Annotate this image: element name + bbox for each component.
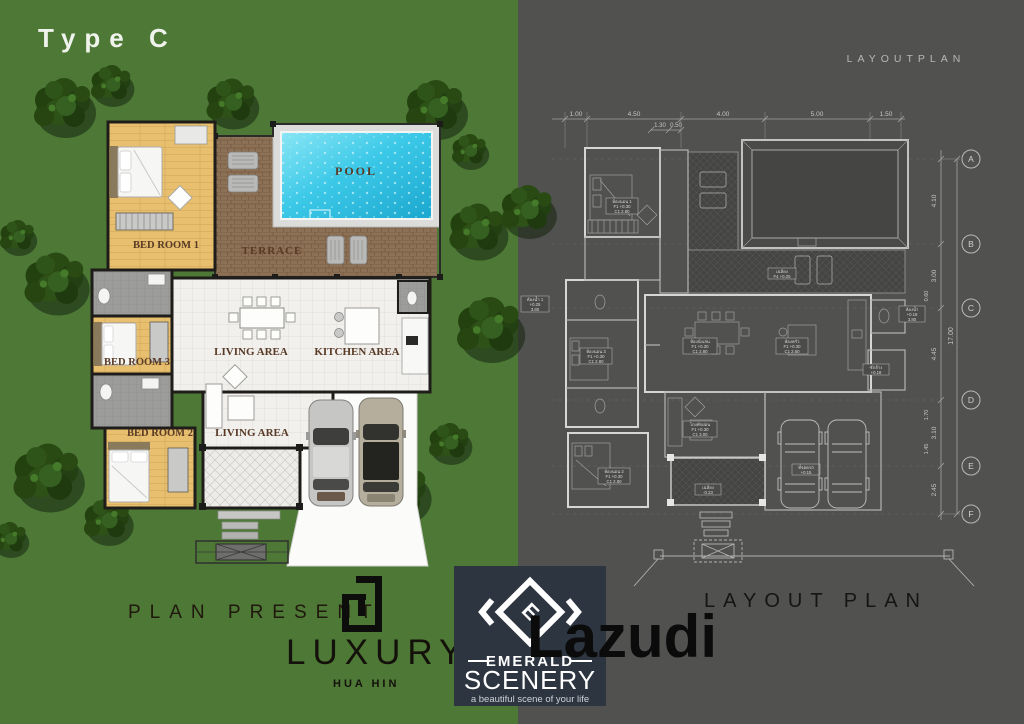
room-bath1	[92, 270, 172, 316]
micro-label-kitchen: ห้องครัว F1 +0.30 C1 2.60	[776, 338, 808, 354]
type-label: Type C	[38, 23, 177, 53]
dim-right-5: 2.45	[931, 483, 938, 496]
car-champagne	[356, 398, 406, 506]
emerald-tagline: a beautiful scene of your life	[471, 694, 589, 705]
svg-text:C1 2.80: C1 2.80	[614, 209, 630, 214]
micro-label-bedroom3: ห้องนอน 3 F1 +0.30 C1 2.80	[580, 348, 612, 364]
blueprint-header: LAYOUTPLAN	[847, 53, 966, 65]
dim-top-2: 4.50	[628, 111, 641, 118]
svg-text:+0.15: +0.15	[801, 470, 812, 475]
grid-row-f: F	[968, 509, 973, 519]
dim-top-5: 1.50	[880, 111, 893, 118]
label-pool: POOL	[335, 164, 377, 178]
room-bedroom2	[105, 428, 195, 508]
grid-row-e: E	[968, 461, 974, 471]
dim-right-minor-1: 0.60	[924, 291, 930, 302]
micro-label-bedroom1: ห้องนอน 1 F1 +0.30 C1 2.80	[606, 198, 638, 214]
luxury-label: LUXURY	[286, 633, 469, 672]
svg-text:C1 2.80: C1 2.80	[606, 479, 622, 484]
grid-row-c: C	[968, 303, 974, 313]
dim-top-1: 1.00	[570, 111, 583, 118]
label-living-main: LIVING AREA	[214, 346, 288, 358]
svg-text:F4 +0.25: F4 +0.25	[773, 274, 791, 279]
dim-top-minor-2: 0.50	[670, 123, 682, 129]
hua-hin-label: HUA HIN	[333, 678, 399, 690]
label-kitchen: KITCHEN AREA	[314, 346, 399, 358]
micro-label-storage: ซักล้าง +0.18	[863, 364, 889, 375]
dim-top-minor-1: 1.30	[654, 123, 666, 129]
dim-total: 17.00	[948, 327, 955, 345]
room-bath2	[92, 374, 172, 428]
label-bedroom3: BED ROOM 3	[104, 357, 170, 368]
svg-text:+0.18: +0.18	[871, 370, 882, 375]
micro-label-porch: เฉลียง -0.23	[695, 484, 721, 495]
dim-right-2: 3.00	[931, 269, 938, 282]
svg-text:-0.23: -0.23	[703, 490, 713, 495]
label-terrace: TERRACE	[242, 245, 303, 257]
label-bedroom2: BED ROOM 2	[127, 428, 193, 439]
colored-floor-plan: POOL TERRACE BED ROOM 1 BED ROOM 3 BED R…	[92, 121, 443, 566]
dim-right-minor-3: 1.45	[924, 444, 930, 455]
dim-right-4: 3.10	[931, 426, 938, 439]
grid-row-d: D	[968, 395, 974, 405]
label-living-second: LIVING AREA	[215, 427, 289, 439]
car-silver	[306, 400, 356, 506]
micro-label-bath-right: ห้องน้ำ +0.18 3.80	[899, 306, 925, 322]
layout-plan-title: LAYOUT PLAN	[704, 590, 928, 612]
svg-text:C1 3.00: C1 3.00	[692, 432, 708, 437]
micro-label-terrace: เฉลียง F4 +0.25	[768, 268, 796, 279]
micro-label-bedroom2: ห้องนอน 2 F1 +0.30 C1 2.80	[598, 468, 630, 484]
svg-text:C1 2.80: C1 2.80	[692, 349, 708, 354]
dim-right-3: 4.45	[931, 347, 938, 360]
poster: Type C	[0, 0, 1024, 724]
svg-text:C1 2.60: C1 2.60	[784, 349, 800, 354]
svg-text:3.80: 3.80	[908, 317, 917, 322]
dim-right-1: 4.10	[931, 194, 938, 207]
dim-top-4: 5.00	[811, 111, 824, 118]
lazudi-logo: Lazudi	[527, 603, 717, 670]
micro-label-bath-left: ห้องน้ำ 1 +0.25 3.80	[521, 296, 549, 312]
micro-label-living2: โถงพักผ่อน F1 +0.30 C1 3.00	[683, 421, 717, 437]
grid-row-b: B	[968, 239, 974, 249]
label-bedroom1: BED ROOM 1	[133, 240, 199, 251]
svg-text:3.80: 3.80	[531, 307, 540, 312]
dim-right-minor-2: 1.70	[924, 410, 930, 421]
dim-top-3: 4.00	[717, 111, 730, 118]
micro-label-living: ห้องนั่งเล่น F1 +0.30 C1 2.80	[683, 338, 717, 354]
svg-text:C1 2.80: C1 2.80	[588, 359, 604, 364]
poster-canvas: Type C	[0, 0, 1024, 724]
grid-row-a: A	[968, 154, 974, 164]
